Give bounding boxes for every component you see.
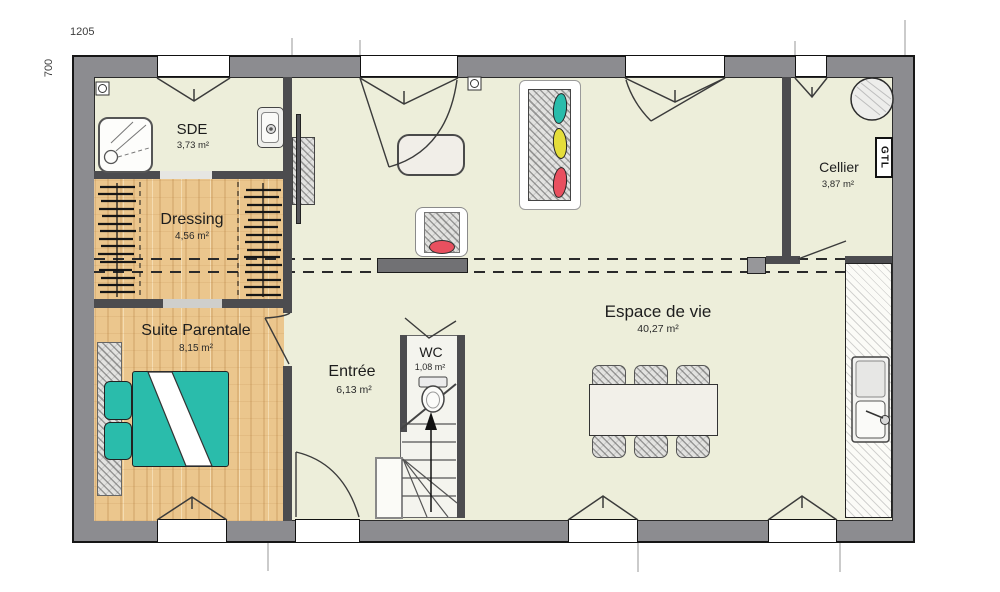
room-entree-area: 6,13 m² bbox=[336, 384, 372, 396]
armchair-cushion bbox=[429, 240, 455, 254]
french-door-opening-right bbox=[625, 55, 725, 77]
tv-screen bbox=[296, 114, 301, 224]
wall-cellier-vertical bbox=[782, 77, 791, 258]
room-sde-label: SDE bbox=[177, 121, 208, 138]
wall-stair-right bbox=[457, 335, 465, 518]
window-opening-cellier bbox=[795, 55, 827, 77]
understairs-closet bbox=[375, 457, 403, 519]
opening-dressing-suite bbox=[163, 299, 222, 308]
room-wc-label: WC bbox=[419, 344, 442, 360]
room-entree-label: Entrée bbox=[328, 363, 375, 381]
gtl-label: GTL bbox=[879, 146, 890, 169]
room-vie-area: 40,27 m² bbox=[637, 323, 678, 335]
room-dressing-label: Dressing bbox=[160, 211, 223, 229]
dimension-height-label: 700 bbox=[43, 59, 55, 77]
chair bbox=[676, 434, 710, 458]
room-vie-label: Espace de vie bbox=[605, 302, 712, 322]
shower-symbol bbox=[98, 117, 153, 173]
room-wc-area: 1,08 m² bbox=[415, 362, 446, 372]
window-opening-sde bbox=[157, 55, 230, 77]
wall-left-vertical-lower bbox=[283, 366, 292, 521]
wall-wc-left bbox=[400, 335, 407, 432]
room-suite-label: Suite Parentale bbox=[141, 322, 250, 340]
entrance-door-opening bbox=[295, 519, 360, 543]
wall-dressing-suite-right bbox=[222, 299, 284, 308]
room-suite-area: 8,15 m² bbox=[179, 343, 213, 354]
wall-post bbox=[747, 257, 766, 274]
bed-pillow bbox=[104, 381, 132, 420]
room-cellier-area: 3,87 m² bbox=[822, 179, 854, 190]
dining-table bbox=[589, 384, 718, 436]
chair bbox=[592, 434, 626, 458]
bed-pillow bbox=[104, 422, 132, 460]
washbasin-symbol bbox=[257, 107, 284, 148]
opening-sde-dressing bbox=[160, 171, 212, 179]
window-opening-suite bbox=[157, 519, 227, 543]
wall-left-vertical-upper bbox=[283, 77, 292, 313]
coffee-table bbox=[397, 134, 465, 176]
room-sde-area: 3,73 m² bbox=[177, 140, 209, 151]
floor-plan: 1205 700 bbox=[0, 0, 1000, 592]
bed-mattress bbox=[132, 371, 229, 467]
armchair bbox=[415, 207, 468, 257]
wall-dressing-suite-left bbox=[94, 299, 163, 308]
wall-cellier-bottom-left bbox=[766, 256, 800, 264]
wall-sde-dressing-right bbox=[212, 171, 284, 179]
gtl-box: GTL bbox=[875, 137, 893, 178]
room-cellier-label: Cellier bbox=[819, 159, 859, 175]
chair bbox=[634, 434, 668, 458]
room-dressing-area: 4,56 m² bbox=[175, 231, 209, 242]
window-opening-living-1 bbox=[568, 519, 638, 543]
beam-dashed-line-lower bbox=[94, 271, 892, 273]
french-door-opening-left bbox=[360, 55, 458, 77]
beam-bar bbox=[377, 258, 468, 273]
dimension-width-label: 1205 bbox=[70, 26, 94, 38]
window-opening-living-2 bbox=[768, 519, 837, 543]
washbasin-bowl bbox=[261, 112, 279, 143]
kitchen-counter bbox=[845, 263, 892, 518]
